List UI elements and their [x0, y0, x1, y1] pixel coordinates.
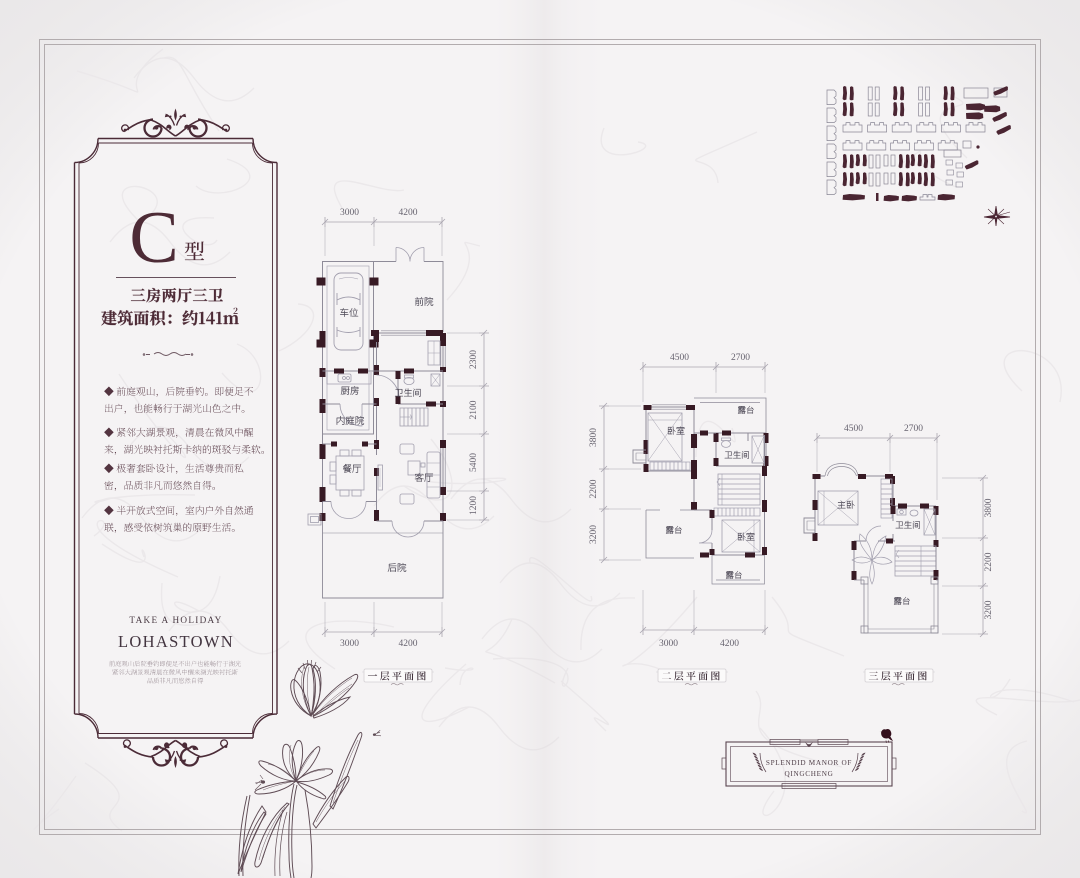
svg-text:3000: 3000	[340, 208, 359, 218]
svg-text:4200: 4200	[399, 208, 418, 218]
svg-text:2700: 2700	[731, 353, 750, 363]
svg-text:QINGCHENG: QINGCHENG	[784, 770, 833, 778]
svg-text:4500: 4500	[670, 353, 689, 363]
svg-text:4200: 4200	[720, 639, 739, 649]
svg-text:C: C	[129, 197, 178, 279]
svg-text:SPLENDID MANOR OF: SPLENDID MANOR OF	[766, 759, 852, 767]
svg-text:2200: 2200	[984, 552, 994, 571]
svg-text:2700: 2700	[904, 424, 923, 434]
svg-text:5400: 5400	[469, 453, 479, 472]
svg-text:2100: 2100	[469, 400, 479, 419]
svg-text:LOHASTOWN: LOHASTOWN	[118, 632, 234, 651]
svg-text:TAKE A HOLIDAY: TAKE A HOLIDAY	[129, 615, 222, 625]
svg-text:4500: 4500	[844, 424, 863, 434]
svg-text:2300: 2300	[469, 350, 479, 369]
svg-text:1200: 1200	[469, 496, 479, 515]
svg-text:3200: 3200	[589, 525, 599, 544]
svg-text:3800: 3800	[984, 498, 994, 517]
svg-text:3800: 3800	[589, 428, 599, 447]
svg-text:3000: 3000	[340, 639, 359, 649]
svg-text:4200: 4200	[399, 639, 418, 649]
svg-text:2200: 2200	[589, 479, 599, 498]
svg-text:3000: 3000	[659, 639, 678, 649]
svg-text:3200: 3200	[984, 600, 994, 619]
